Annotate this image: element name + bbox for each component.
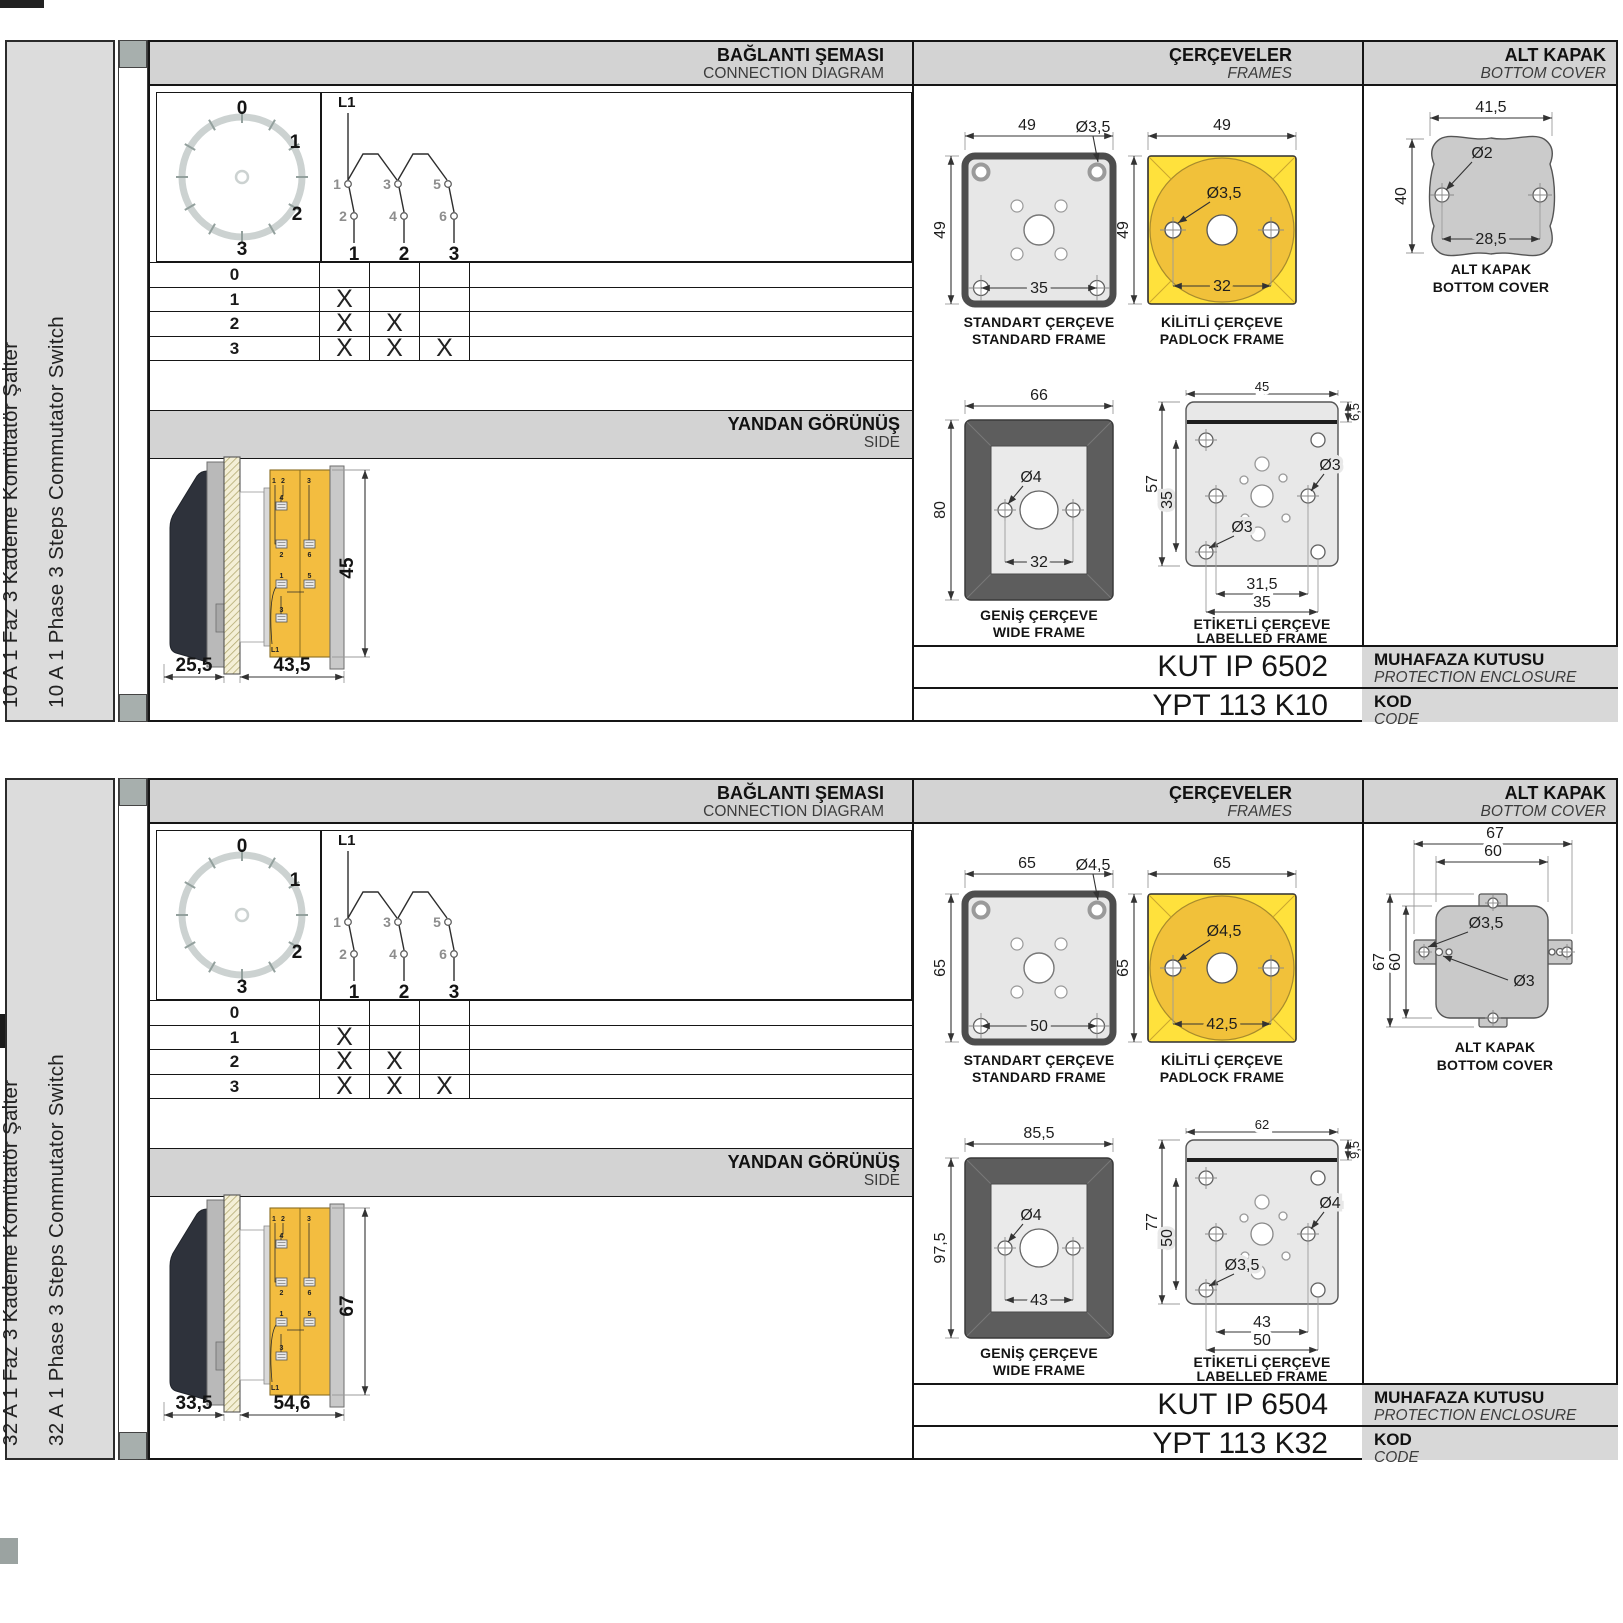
frame-title-en: WIDE FRAME	[993, 1362, 1085, 1378]
header-cover: ALT KAPAK BOTTOM COVER	[1364, 780, 1616, 824]
dim-centers: 31,5	[1246, 576, 1277, 593]
header-cover: ALT KAPAK BOTTOM COVER	[1364, 42, 1616, 86]
dim-height-outer: 67	[1371, 953, 1388, 971]
standard-frame-drawing: 49 Ø3,5 49 35 STANDART ÇERÇEVE STANDARD …	[935, 90, 1147, 352]
dim-height: 77	[1144, 1213, 1161, 1231]
mark-cell	[370, 288, 420, 312]
contact-4: 4	[389, 208, 397, 224]
empty-cell	[470, 263, 912, 287]
datasheet-main: BAĞLANTI ŞEMASI CONNECTION DIAGRAM ÇERÇE…	[148, 778, 1618, 1460]
table-row: 3 X X X	[150, 337, 912, 362]
terminal-label: 6	[308, 552, 312, 559]
frame-title-en: LABELLED FRAME	[1196, 630, 1327, 646]
dim-hole: Ø3,5	[1207, 185, 1242, 202]
dim-height: 49	[1115, 221, 1132, 239]
step-label: 2	[150, 312, 320, 336]
enclosure-label-tr: MUHAFAZA KUTUSU	[1374, 650, 1618, 669]
terminal-label: 1	[280, 573, 284, 580]
scan-artifact	[0, 1538, 18, 1564]
header-frames-en: FRAMES	[914, 803, 1292, 820]
terminal-label: 2	[281, 478, 285, 485]
contact-3: 3	[383, 914, 391, 930]
dim-height-inner: 60	[1387, 953, 1404, 971]
dim-centers: 35	[1030, 280, 1048, 297]
scan-artifact	[0, 0, 44, 8]
frame-title-en: PADLOCK FRAME	[1160, 1069, 1284, 1085]
dim-hole-left: Ø3,5	[1225, 1257, 1260, 1274]
header-frames-tr: ÇERÇEVELER	[914, 45, 1292, 65]
dim-hole-right: Ø4	[1319, 1195, 1340, 1212]
side-header-tr: YANDAN GÖRÜNÜŞ	[150, 414, 900, 434]
frame-title-tr: STANDART ÇERÇEVE	[964, 314, 1115, 330]
contact-schematic: L1 1 3 5 2 4 6 1 2 3	[320, 88, 510, 266]
mark-cell	[370, 1001, 420, 1025]
empty-cell	[470, 1026, 912, 1050]
dim-hole-left: Ø3	[1231, 519, 1252, 536]
bottom-cover-drawing: 67 60 67 60 Ø3,5 Ø3 ALT KAPAK BOTTOM COV…	[1362, 826, 1620, 1086]
dim-height: 65	[932, 959, 949, 977]
dim-height: 45	[337, 557, 358, 579]
dim-width: 65	[1018, 855, 1036, 872]
mark-cell: X	[320, 337, 370, 361]
empty-cell	[470, 1050, 912, 1074]
padlock-frame-drawing: 49 49 Ø3,5 32 KİLİTLİ ÇERÇEVE PADLOCK FR…	[1118, 90, 1330, 352]
code-label: KOD CODE	[1362, 1427, 1618, 1460]
terminal-label: L1	[271, 1385, 279, 1392]
mark-cell: X	[370, 1050, 420, 1074]
binder-spine	[118, 778, 148, 1460]
labelled-frame-drawing: 45 6,5 57 35 Ø3 Ø3 31,5 35 ETİKETLİ ÇERÇ…	[1150, 382, 1362, 644]
enclosure-label-en: PROTECTION ENCLOSURE	[1374, 669, 1618, 686]
terminal-label: 2	[280, 552, 284, 559]
terminal-label: 3	[280, 1345, 284, 1352]
mark-cell: X	[320, 288, 370, 312]
frame-title-tr: GENİŞ ÇERÇEVE	[980, 1345, 1098, 1361]
dim-strip: 9,5	[1347, 1141, 1362, 1159]
mark-cell: X	[320, 1050, 370, 1074]
table-row: 1 X	[150, 288, 912, 313]
dim-centers: 50	[1030, 1018, 1048, 1035]
product-panel-32a: 32 A 1 Faz 3 Kademe Komütatör Şalter 32 …	[0, 778, 1623, 1460]
mark-cell: X	[370, 312, 420, 336]
side-header-tr: YANDAN GÖRÜNÜŞ	[150, 1152, 900, 1172]
mark-cell: X	[320, 312, 370, 336]
side-view-drawing: 1 2 3 4 2 6 1 5 3 L1 33,5 54,6 67	[160, 1194, 440, 1438]
header-cover-tr: ALT KAPAK	[1364, 783, 1606, 803]
dim-hole: Ø2	[1471, 145, 1492, 162]
dim-width: 66	[1030, 387, 1048, 404]
enclosure-label: MUHAFAZA KUTUSU PROTECTION ENCLOSURE	[1362, 1385, 1618, 1425]
product-title-en: 10 A 1 Phase 3 Steps Commutator Switch	[45, 316, 69, 708]
contact-5: 5	[433, 914, 441, 930]
code-label-en: CODE	[1374, 711, 1618, 728]
terminal-label: 5	[308, 573, 312, 580]
step-label: 0	[150, 263, 320, 287]
dim-inner: 35	[1159, 491, 1176, 509]
terminal-label: 6	[308, 1290, 312, 1297]
dim-inner: 50	[1159, 1229, 1176, 1247]
header-connection-en: CONNECTION DIAGRAM	[150, 803, 884, 820]
table-row: 1 X	[150, 1026, 912, 1051]
dim-hole: Ø4,5	[1207, 923, 1242, 940]
spine-square-bottom	[119, 694, 147, 722]
dim-height: 49	[932, 221, 949, 239]
contact-4: 4	[389, 946, 397, 962]
dim-strip: 6,5	[1347, 403, 1362, 421]
header-connection: BAĞLANTI ŞEMASI CONNECTION DIAGRAM	[150, 42, 912, 86]
contact-5: 5	[433, 176, 441, 192]
header-connection-tr: BAĞLANTI ŞEMASI	[150, 783, 884, 803]
header-connection-tr: BAĞLANTI ŞEMASI	[150, 45, 884, 65]
code-label-en: CODE	[1374, 1449, 1618, 1466]
spine-square-top	[119, 778, 147, 806]
step-table: 0 1 X 2 X X 3 X	[150, 262, 912, 361]
dim-width-outer: 67	[1486, 825, 1504, 842]
table-row: 3 X X X	[150, 1075, 912, 1100]
dim-height: 80	[932, 501, 949, 519]
header-frames: ÇERÇEVELER FRAMES	[914, 780, 1362, 824]
header-connection-en: CONNECTION DIAGRAM	[150, 65, 884, 82]
side-label-bar: 10 A 1 Faz 3 Kademe Komütatör Şalter 10 …	[5, 40, 115, 722]
column-divider	[912, 780, 914, 1458]
product-title-tr: 10 A 1 Faz 3 Kademe Komütatör Şalter	[0, 342, 23, 708]
labelled-frame-drawing: 62 9,5 77 50 Ø4 Ø3,5 43 50 ETİKETLİ ÇERÇ…	[1150, 1120, 1362, 1382]
dim-width: 85,5	[1023, 1125, 1054, 1142]
product-code: YPT 113 K32	[912, 1427, 1362, 1460]
dial-pos-0: 0	[237, 98, 248, 119]
step-label: 3	[150, 337, 320, 361]
dim-hole: Ø4	[1020, 469, 1041, 486]
dial-pos-0: 0	[237, 836, 248, 857]
terminal-label: 3	[280, 607, 284, 614]
dim-hole: Ø4	[1020, 1207, 1041, 1224]
rotary-dial-diagram: 0 1 2 3	[155, 832, 320, 998]
mark-cell	[370, 263, 420, 287]
empty-cell	[470, 312, 912, 336]
frame-title-en: PADLOCK FRAME	[1160, 331, 1284, 347]
dim-width: 49	[1018, 117, 1036, 134]
dial-pos-2: 2	[292, 942, 303, 963]
dim-body: 54,6	[274, 1393, 311, 1414]
dim-height: 67	[337, 1295, 358, 1316]
contact-2: 2	[339, 208, 347, 224]
header-cover-en: BOTTOM COVER	[1364, 65, 1606, 82]
mark-cell	[320, 263, 370, 287]
side-header-en: SIDE	[150, 1172, 900, 1189]
terminal-label: 5	[308, 1311, 312, 1318]
table-row: 0	[150, 263, 912, 288]
dim-width: 45	[1255, 379, 1269, 394]
binder-spine	[118, 40, 148, 722]
terminal-label: 1	[272, 478, 276, 485]
dim-width-inner: 60	[1484, 843, 1502, 860]
dim-hole-right: Ø3	[1319, 457, 1340, 474]
contact-6: 6	[439, 208, 447, 224]
product-title-tr: 32 A 1 Faz 3 Kademe Komütatör Şalter	[0, 1080, 23, 1446]
enclosure-label-en: PROTECTION ENCLOSURE	[1374, 1407, 1618, 1424]
empty-cell	[470, 337, 912, 361]
mark-cell	[420, 1050, 470, 1074]
contact-1: 1	[333, 914, 341, 930]
dim-height: 40	[1393, 187, 1410, 205]
side-view-header: YANDAN GÖRÜNÜŞ SIDE	[150, 410, 912, 459]
empty-cell	[470, 1001, 912, 1025]
dim-hole-big: Ø3,5	[1469, 915, 1504, 932]
terminal-label: 1	[280, 1311, 284, 1318]
dim-centers: 42,5	[1206, 1016, 1237, 1033]
mark-cell	[420, 1001, 470, 1025]
dim-front: 25,5	[176, 655, 213, 676]
wide-frame-drawing: Ø4 85,5 97,5 43 GENİŞ ÇERÇEVE WIDE FRAME	[935, 1122, 1147, 1378]
code-label-tr: KOD	[1374, 1430, 1618, 1449]
contact-2: 2	[339, 946, 347, 962]
wide-frame-drawing: Ø4 66 80 32 GENİŞ ÇERÇEVE WIDE FRAME	[935, 384, 1147, 640]
step-label: 0	[150, 1001, 320, 1025]
dim-width: 41,5	[1475, 99, 1506, 116]
frame-title-tr: KİLİTLİ ÇERÇEVE	[1161, 1052, 1283, 1068]
table-row: 2 X X	[150, 312, 912, 337]
dim-hole: Ø4,5	[1076, 857, 1111, 874]
code-label-tr: KOD	[1374, 692, 1618, 711]
header-cover-tr: ALT KAPAK	[1364, 45, 1606, 65]
spine-square-top	[119, 40, 147, 68]
frame-title-tr: STANDART ÇERÇEVE	[964, 1052, 1115, 1068]
header-frames-en: FRAMES	[914, 65, 1292, 82]
frame-title-en: WIDE FRAME	[993, 624, 1085, 640]
mark-cell	[370, 1026, 420, 1050]
mark-cell	[420, 312, 470, 336]
mark-cell	[320, 1001, 370, 1025]
enclosure-label: MUHAFAZA KUTUSU PROTECTION ENCLOSURE	[1362, 647, 1618, 687]
dim-width: 62	[1255, 1117, 1269, 1132]
enclosure-code: KUT IP 6502	[912, 647, 1362, 687]
dial-pos-3: 3	[237, 239, 248, 260]
dim-height: 65	[1115, 959, 1132, 977]
terminal-label: 2	[281, 1216, 285, 1223]
mark-cell: X	[420, 1075, 470, 1099]
terminal-label: 3	[307, 1216, 311, 1223]
contact-6: 6	[439, 946, 447, 962]
frame-title-en: LABELLED FRAME	[1196, 1368, 1327, 1384]
column-divider	[912, 42, 914, 720]
mark-cell	[420, 288, 470, 312]
step-label: 3	[150, 1075, 320, 1099]
header-cover-en: BOTTOM COVER	[1364, 803, 1606, 820]
bottom-cover-drawing: 41,5 Ø2 40 28,5 ALT KAPAK BOTTOM COVER	[1362, 92, 1620, 307]
dim-outer: 50	[1253, 1332, 1271, 1349]
empty-cell	[470, 1075, 912, 1099]
dial-pos-3: 3	[237, 977, 248, 998]
frame-title-en: STANDARD FRAME	[972, 1069, 1106, 1085]
dim-centers: 32	[1213, 278, 1231, 295]
dial-pos-1: 1	[290, 132, 301, 153]
dial-pos-1: 1	[290, 870, 301, 891]
contact-3: 3	[383, 176, 391, 192]
dim-hole: Ø3,5	[1076, 119, 1111, 136]
dim-width: 65	[1213, 855, 1231, 872]
spine-square-bottom	[119, 1432, 147, 1460]
step-table: 0 1 X 2 X X 3 X	[150, 1000, 912, 1099]
step-label: 1	[150, 1026, 320, 1050]
catalog-page: 10 A 1 Faz 3 Kademe Komütatör Şalter 10 …	[0, 0, 1623, 1623]
datasheet-main: BAĞLANTI ŞEMASI CONNECTION DIAGRAM ÇERÇE…	[148, 40, 1618, 722]
table-row: 0	[150, 1001, 912, 1026]
table-row: 2 X X	[150, 1050, 912, 1075]
side-header-en: SIDE	[150, 434, 900, 451]
mark-cell	[420, 263, 470, 287]
terminal-label: 4	[280, 495, 284, 502]
cover-title-tr: ALT KAPAK	[1455, 1039, 1536, 1055]
rotary-dial-diagram: 0 1 2 3	[155, 94, 320, 260]
enclosure-label-tr: MUHAFAZA KUTUSU	[1374, 1388, 1618, 1407]
dim-body: 43,5	[274, 655, 311, 676]
terminal-label: 3	[307, 478, 311, 485]
supply-label: L1	[338, 832, 356, 849]
step-label: 1	[150, 288, 320, 312]
mark-cell: X	[370, 337, 420, 361]
dim-height: 97,5	[932, 1232, 949, 1263]
header-frames: ÇERÇEVELER FRAMES	[914, 42, 1362, 86]
header-frames-tr: ÇERÇEVELER	[914, 783, 1292, 803]
enclosure-code: KUT IP 6504	[912, 1385, 1362, 1425]
header-connection: BAĞLANTI ŞEMASI CONNECTION DIAGRAM	[150, 780, 912, 824]
terminal-label: 1	[272, 1216, 276, 1223]
dim-outer: 35	[1253, 594, 1271, 611]
frame-title-tr: KİLİTLİ ÇERÇEVE	[1161, 314, 1283, 330]
side-view-drawing: 1 2 3 4 2 6 1 5 3 L1 25,5 43,5 45	[160, 456, 440, 700]
code-label: KOD CODE	[1362, 689, 1618, 722]
mark-cell: X	[370, 1075, 420, 1099]
mark-cell: X	[320, 1075, 370, 1099]
supply-label: L1	[338, 94, 356, 111]
terminal-label: L1	[271, 647, 279, 654]
cover-title-tr: ALT KAPAK	[1451, 261, 1532, 277]
dim-front: 33,5	[176, 1393, 213, 1414]
frame-title-en: STANDARD FRAME	[972, 331, 1106, 347]
dim-centers: 43	[1253, 1314, 1271, 1331]
empty-cell	[470, 288, 912, 312]
dim-hole-small: Ø3	[1513, 973, 1534, 990]
contact-1: 1	[333, 176, 341, 192]
frame-title-tr: GENİŞ ÇERÇEVE	[980, 607, 1098, 623]
side-label-bar: 32 A 1 Faz 3 Kademe Komütatör Şalter 32 …	[5, 778, 115, 1460]
cover-title-en: BOTTOM COVER	[1437, 1057, 1553, 1073]
cover-title-en: BOTTOM COVER	[1433, 279, 1549, 295]
contact-schematic: L1 1 3 5 2 4 6 1 2 3	[320, 826, 510, 1004]
side-view-header: YANDAN GÖRÜNÜŞ SIDE	[150, 1148, 912, 1197]
product-title-en: 32 A 1 Phase 3 Steps Commutator Switch	[45, 1054, 69, 1446]
dim-centers: 43	[1030, 1292, 1048, 1309]
product-code: YPT 113 K10	[912, 689, 1362, 722]
mark-cell	[420, 1026, 470, 1050]
mark-cell: X	[320, 1026, 370, 1050]
dim-centers: 32	[1030, 554, 1048, 571]
step-label: 2	[150, 1050, 320, 1074]
product-panel-10a: 10 A 1 Faz 3 Kademe Komütatör Şalter 10 …	[0, 40, 1623, 722]
padlock-frame-drawing: 65 65 Ø4,5 42,5 KİLİTLİ ÇERÇEVE PADLOCK …	[1118, 828, 1330, 1090]
dial-pos-2: 2	[292, 204, 303, 225]
dim-centers: 28,5	[1475, 231, 1506, 248]
terminal-label: 4	[280, 1233, 284, 1240]
dim-width: 49	[1213, 117, 1231, 134]
mark-cell: X	[420, 337, 470, 361]
dim-height: 57	[1144, 475, 1161, 493]
terminal-label: 2	[280, 1290, 284, 1297]
standard-frame-drawing: 65 Ø4,5 65 50 STANDART ÇERÇEVE STANDARD …	[935, 828, 1147, 1090]
